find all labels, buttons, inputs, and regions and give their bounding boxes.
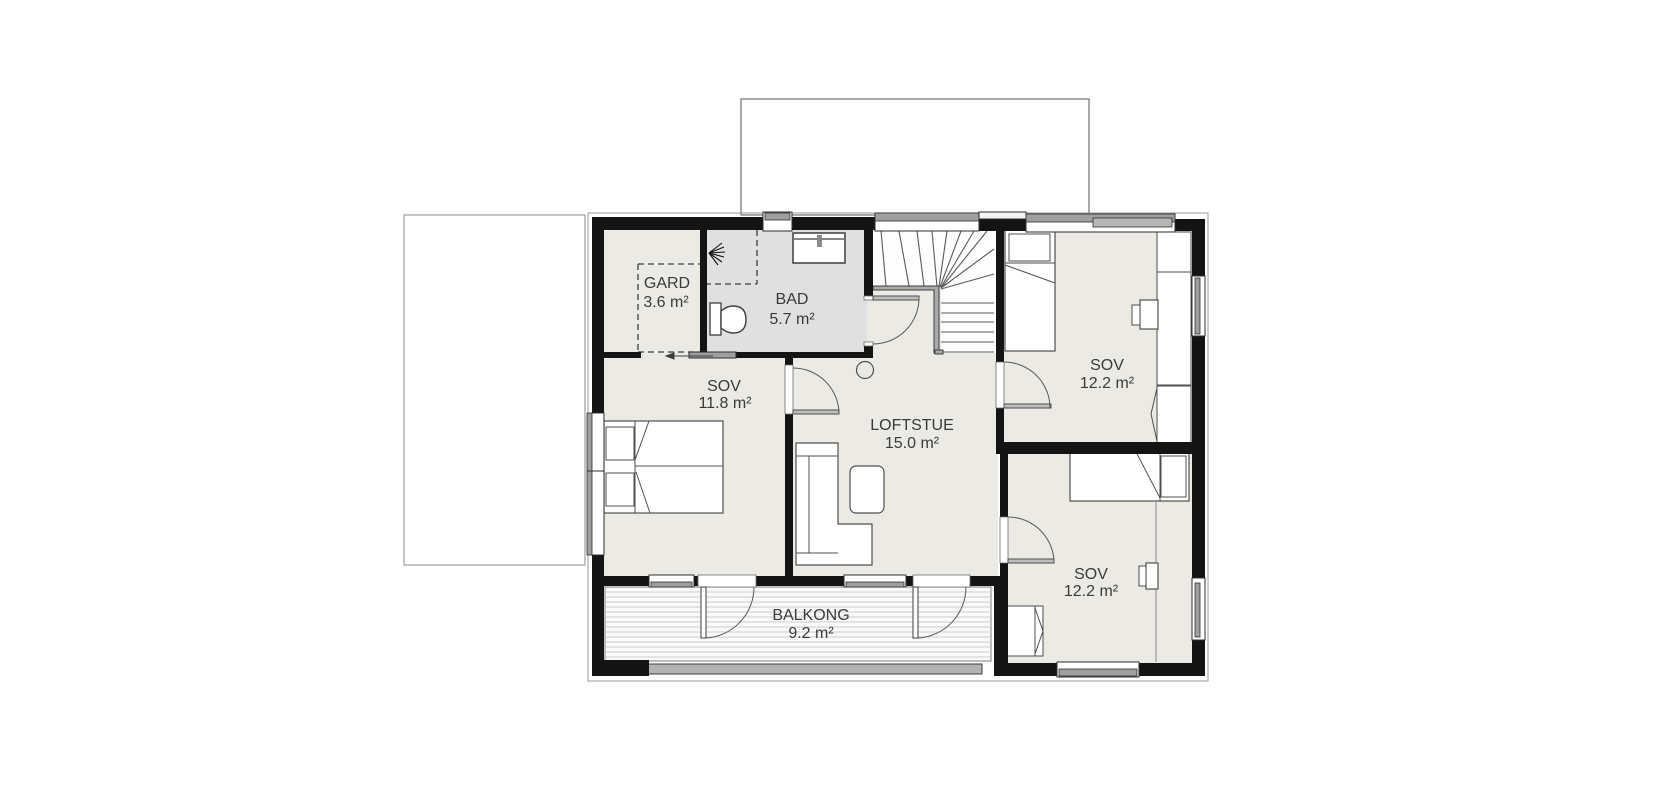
svg-text:LOFTSTUE: LOFTSTUE	[870, 417, 954, 434]
svg-text:3.6 m²: 3.6 m²	[643, 294, 689, 311]
svg-text:12.2 m²: 12.2 m²	[1064, 583, 1119, 600]
svg-text:BALKONG: BALKONG	[772, 607, 849, 624]
svg-text:SOV: SOV	[1074, 566, 1108, 583]
svg-text:GARD: GARD	[644, 275, 690, 292]
svg-text:11.8 m²: 11.8 m²	[698, 395, 752, 412]
svg-text:15.0 m²: 15.0 m²	[885, 435, 940, 452]
svg-text:SOV: SOV	[1090, 357, 1124, 374]
svg-text:BAD: BAD	[776, 291, 809, 308]
svg-text:9.2 m²: 9.2 m²	[788, 625, 834, 642]
svg-text:5.7 m²: 5.7 m²	[769, 311, 815, 328]
svg-text:SOV: SOV	[707, 378, 741, 395]
svg-text:12.2 m²: 12.2 m²	[1080, 375, 1135, 392]
